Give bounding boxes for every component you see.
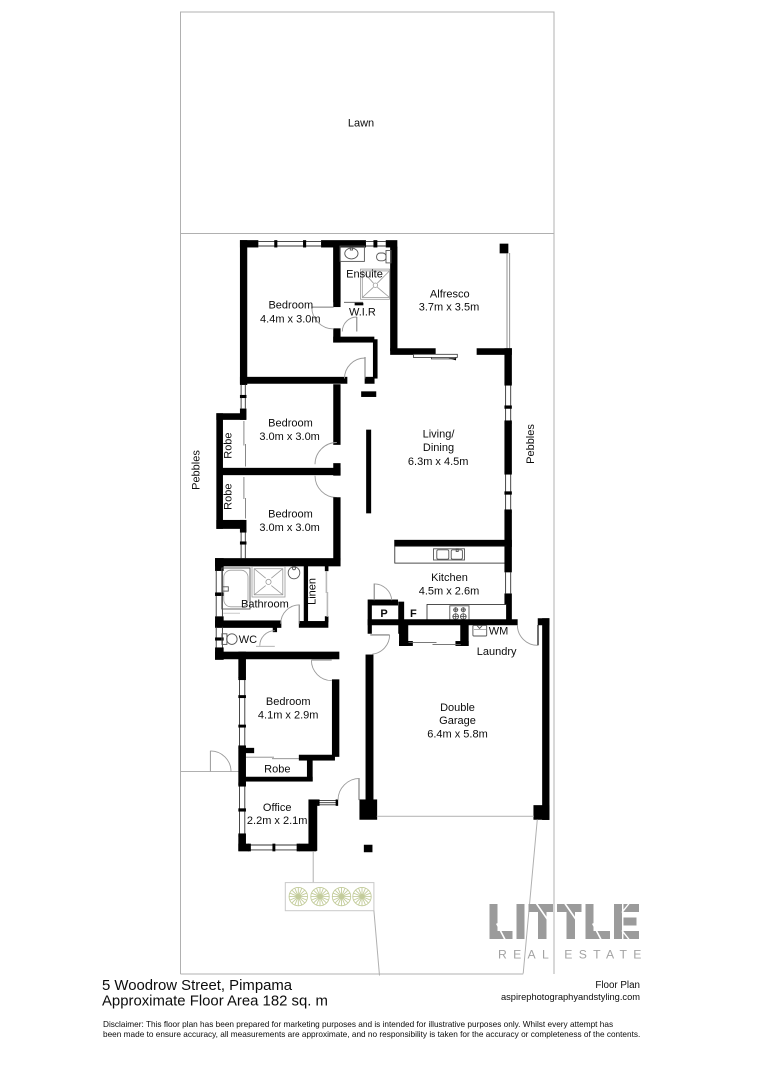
svg-text:Bedroom: Bedroom <box>268 300 313 312</box>
svg-text:2.2m x 2.1m: 2.2m x 2.1m <box>247 815 308 827</box>
svg-text:5 Woodrow Street, Pimpama: 5 Woodrow Street, Pimpama <box>102 978 293 994</box>
svg-text:W.I.R: W.I.R <box>349 306 376 318</box>
svg-text:Office: Office <box>263 802 292 814</box>
svg-text:Ensuite: Ensuite <box>346 269 383 281</box>
svg-text:Alfresco: Alfresco <box>430 288 470 300</box>
svg-text:Double: Double <box>440 702 475 714</box>
svg-text:6.4m x 5.8m: 6.4m x 5.8m <box>427 729 488 741</box>
svg-text:Bedroom: Bedroom <box>268 417 313 429</box>
svg-text:WM: WM <box>489 625 509 637</box>
svg-text:Pebbles: Pebbles <box>190 450 202 490</box>
svg-text:Approximate Floor Area 182 sq.: Approximate Floor Area 182 sq. m <box>102 994 328 1010</box>
svg-text:Pebbles: Pebbles <box>525 424 537 464</box>
svg-text:6.3m x 4.5m: 6.3m x 4.5m <box>408 456 469 468</box>
svg-text:Floor Plan: Floor Plan <box>595 980 640 991</box>
svg-text:aspirephotographyandstyling.co: aspirephotographyandstyling.com <box>501 992 640 1002</box>
svg-text:Bathroom: Bathroom <box>241 599 289 611</box>
svg-text:Lawn: Lawn <box>348 117 374 129</box>
svg-text:Kitchen: Kitchen <box>431 572 468 584</box>
svg-text:P: P <box>380 608 387 620</box>
svg-text:F: F <box>410 608 417 620</box>
svg-text:Garage: Garage <box>439 715 476 727</box>
svg-text:3.0m x 3.0m: 3.0m x 3.0m <box>259 431 320 443</box>
svg-text:4.5m x 2.6m: 4.5m x 2.6m <box>419 586 480 598</box>
svg-text:Living/: Living/ <box>423 429 456 441</box>
svg-text:Robe: Robe <box>222 432 234 458</box>
svg-text:been made to ensure accuracy,: been made to ensure accuracy, all measur… <box>103 1030 640 1039</box>
svg-text:REAL ESTATE: REAL ESTATE <box>498 947 648 961</box>
svg-text:Robe: Robe <box>222 484 234 510</box>
svg-text:3.7m x 3.5m: 3.7m x 3.5m <box>419 301 480 313</box>
svg-text:Linen: Linen <box>307 578 319 605</box>
svg-text:Dining: Dining <box>423 442 454 454</box>
svg-text:WC: WC <box>239 634 257 646</box>
svg-text:4.1m x 2.9m: 4.1m x 2.9m <box>258 709 319 721</box>
svg-text:4.4m x 3.0m: 4.4m x 3.0m <box>260 313 321 325</box>
svg-text:Robe: Robe <box>264 763 290 775</box>
svg-text:Disclaimer: This floor plan ha: Disclaimer: This floor plan has been pre… <box>103 1020 613 1029</box>
svg-text:Laundry: Laundry <box>477 646 517 658</box>
svg-text:Bedroom: Bedroom <box>268 508 313 520</box>
svg-text:Bedroom: Bedroom <box>266 696 311 708</box>
svg-text:3.0m x 3.0m: 3.0m x 3.0m <box>259 522 320 534</box>
